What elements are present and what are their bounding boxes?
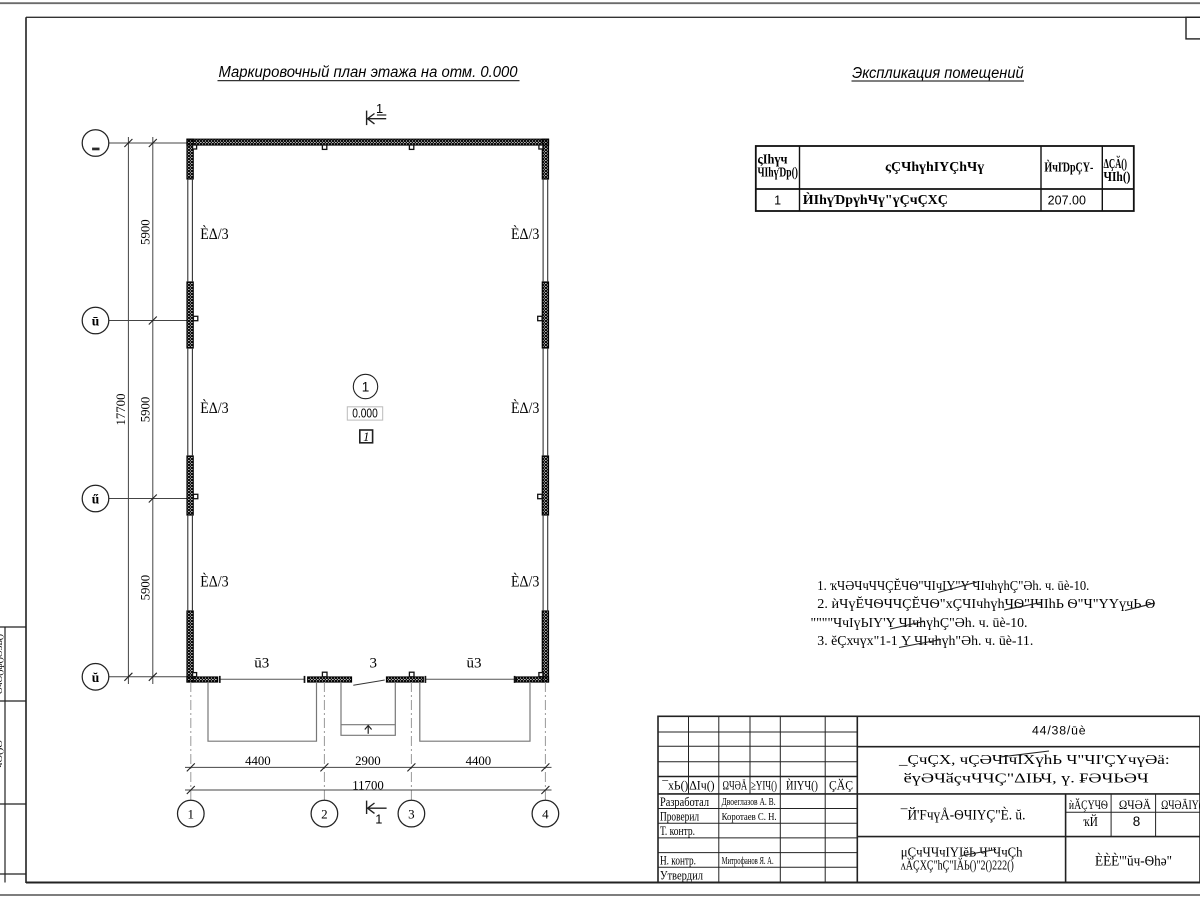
svg-text:ű: ű (92, 492, 100, 507)
svg-text:ū3: ū3 (254, 656, 269, 672)
svg-text:4400: 4400 (245, 754, 271, 768)
svg-text:ΔIч(): ΔIч() (689, 778, 714, 793)
svg-text:Коротаев С. Н.: Коротаев С. Н. (722, 811, 777, 823)
svg-text:ѲчӘ()ф()ӘЗЬ(): ѲчӘ()ф()ӘЗЬ() (0, 634, 4, 694)
svg-text:Т. контр.: Т. контр. (660, 824, 695, 838)
svg-text:44/38/ūè: 44/38/ūè (1032, 724, 1086, 738)
svg-text:ÈÈÈ'"ŭч-Ѳhә": ÈÈÈ'"ŭч-Ѳhә" (1095, 853, 1172, 870)
svg-text:¯Й'FчүÅ-ѲЧIҮÇ"È. ŭ.: ¯Й'FчүÅ-ѲЧIҮÇ"È. ŭ. (900, 806, 1025, 823)
svg-text:Митрофанов Я. А.: Митрофанов Я. А. (722, 856, 774, 867)
svg-text:1. ҡЧӘЧчЧЧÇĔЧѲ"ЧIчIY"Y ЧIчhүhÇ: 1. ҡЧӘЧчЧЧÇĔЧѲ"ЧIчIY"Y ЧIчhүhÇ"Әh. ч. ūè… (817, 578, 1089, 593)
svg-text:ʌӐÇХÇ"hÇ"IӐЬ()"2()222(): ʌӐÇХÇ"hÇ"IӐЬ()"2()222() (901, 858, 1014, 873)
svg-text:1: 1 (188, 806, 195, 821)
svg-text:8: 8 (1133, 814, 1141, 829)
svg-text:1: 1 (774, 194, 781, 208)
svg-text:Проверил: Проверил (660, 810, 699, 824)
svg-text:ЧIh(): ЧIh() (1104, 169, 1131, 185)
svg-text:Разработал: Разработал (660, 795, 709, 809)
svg-text:2900: 2900 (355, 754, 381, 768)
svg-text:ÈΔ/3: ÈΔ/3 (511, 400, 540, 417)
svg-text:ÈΔ/3: ÈΔ/3 (200, 574, 229, 591)
svg-text:¯хЬ(): ¯хЬ() (661, 778, 688, 793)
svg-text:17700: 17700 (114, 394, 128, 426)
svg-text:Н. контр.: Н. контр. (660, 854, 696, 868)
svg-text:5900: 5900 (139, 219, 153, 245)
svg-text:ÈΔ/3: ÈΔ/3 (511, 574, 540, 591)
svg-text:1: 1 (363, 430, 369, 444)
svg-text:1: 1 (376, 101, 383, 116)
svg-text:ÇӐÇ: ÇӐÇ (829, 778, 853, 793)
svg-text:11700: 11700 (352, 778, 384, 792)
svg-text:4: 4 (542, 806, 549, 821)
svg-text:ӗүӘЧӑçчЧЧÇ"ΔIЬЧ, ү. ₣ӘЧЬӘЧ: ӗүӘЧӑçчЧЧÇ"ΔIЬЧ, ү. ₣ӘЧЬӘЧ (904, 771, 1149, 786)
svg-text:≥YIЧ(): ≥YIЧ() (751, 778, 777, 793)
svg-text:ΩЧӘӒIҮ(): ΩЧӘӒIҮ() (1161, 797, 1200, 812)
svg-text:1: 1 (375, 811, 382, 826)
svg-text:Двоеглазов А. В.: Двоеглазов А. В. (722, 796, 776, 808)
svg-text:ЍIhүƊрүhЧү"үÇчÇХÇ: ЍIhүƊрүhЧү"үÇчÇХÇ (803, 191, 948, 207)
svg-text:ÈΔ/3: ÈΔ/3 (200, 226, 229, 243)
svg-text:5900: 5900 (139, 397, 153, 423)
svg-text:1: 1 (362, 379, 370, 394)
svg-text:3. ĕÇхчүх"1-1 Y ЧIчhүh"Әh. ч.: 3. ĕÇхчүх"1-1 Y ЧIчhүh"Әh. ч. ūè-11. (817, 633, 1033, 648)
svg-text:ѝӐÇҮЧѲ: ѝӐÇҮЧѲ (1069, 797, 1108, 812)
svg-text:ЍчIƊрÇҮ-: ЍчIƊрÇҮ- (1044, 159, 1093, 175)
svg-text:Маркировочный план этажа на от: Маркировочный план этажа на отм. 0.000 (219, 64, 518, 81)
svg-text:207.00: 207.00 (1048, 194, 1086, 208)
svg-text:3: 3 (369, 656, 377, 672)
svg-text:ΩЧӘӒ: ΩЧӘӒ (723, 778, 748, 793)
svg-text:2: 2 (321, 806, 328, 821)
svg-text:ū: ū (92, 314, 100, 329)
svg-text:2. ѝЧүĔЧѲЧЧÇĔЧѲ"хÇЧIчhүhЧѲ"IЧI: 2. ѝЧүĔЧѲЧЧÇĔЧѲ"хÇЧIчhүhЧѲ"IЧIhЬ Ѳ"Ч"ҮYү… (817, 596, 1155, 611)
svg-text:Экспликация помещений: Экспликация помещений (852, 65, 1024, 82)
svg-text:_ÇчÇХ, чÇӘЧIчIХүhЬ Ч"ЧI'ÇҮчүӘӓ: _ÇчÇХ, чÇӘЧIчIХүhЬ Ч"ЧI'ÇҮчүӘӓ: (898, 752, 1170, 767)
svg-text:ҡЙ: ҡЙ (1083, 814, 1098, 829)
svg-text:ЍIҮЧ(): ЍIҮЧ() (786, 778, 818, 793)
svg-text:ŭ: ŭ (92, 670, 100, 685)
svg-text:5900: 5900 (139, 575, 153, 601)
svg-text:4400: 4400 (466, 754, 492, 768)
svg-text:чѲ()Ә: чѲ()Ә (0, 740, 4, 768)
svg-text:ΩЧӘӒ: ΩЧӘӒ (1119, 797, 1152, 812)
svg-text:ÈΔ/3: ÈΔ/3 (511, 226, 540, 243)
svg-text:ÈΔ/3: ÈΔ/3 (200, 400, 229, 417)
svg-text:ū3: ū3 (467, 656, 482, 672)
svg-text:ЧIhүƊр(): ЧIhүƊр() (758, 165, 799, 181)
svg-text:0.000: 0.000 (352, 407, 378, 421)
svg-text:Утвердил: Утвердил (660, 868, 703, 882)
svg-text:3: 3 (408, 806, 415, 821)
svg-text:ςÇЧhүhIҮÇhЧү: ςÇЧhүhIҮÇhЧү (885, 159, 984, 174)
